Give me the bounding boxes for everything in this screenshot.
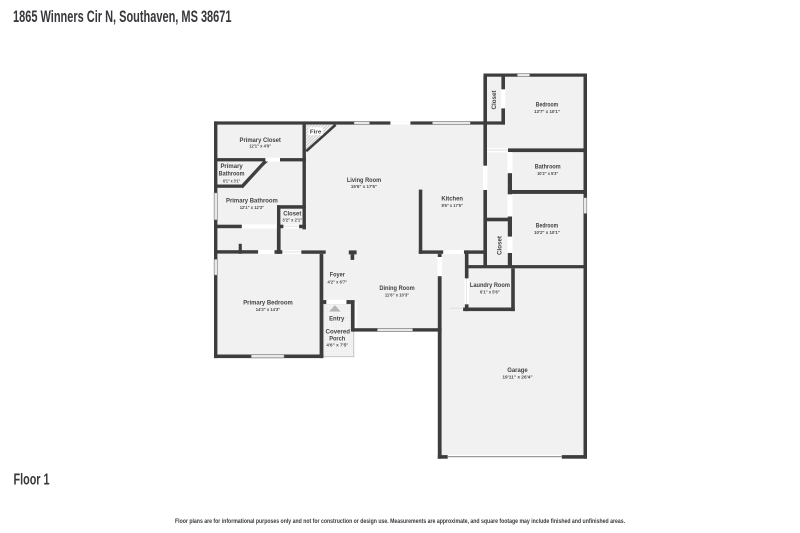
svg-text:10'2" x 10'1": 10'2" x 10'1"	[534, 230, 560, 235]
svg-text:8'6" x 17'5": 8'6" x 17'5"	[441, 203, 463, 208]
svg-text:Bathroom: Bathroom	[219, 171, 245, 178]
svg-text:6'1" x 5'6": 6'1" x 5'6"	[480, 289, 500, 294]
svg-text:Entry: Entry	[329, 316, 345, 323]
svg-text:Covered: Covered	[326, 328, 351, 335]
svg-text:14'3" x 14'3": 14'3" x 14'3"	[256, 307, 280, 312]
svg-text:15'6" x 17'5": 15'6" x 17'5"	[351, 184, 377, 189]
svg-text:Floor 1: Floor 1	[14, 472, 50, 489]
svg-text:Laundry Room: Laundry Room	[470, 282, 510, 289]
svg-text:Closet: Closet	[491, 90, 498, 110]
svg-text:Primary Bathroom: Primary Bathroom	[226, 197, 278, 204]
svg-text:Kitchen: Kitchen	[441, 195, 463, 202]
svg-text:Closet: Closet	[283, 211, 302, 218]
svg-text:Floor plans are for informatio: Floor plans are for informational purpos…	[175, 518, 625, 525]
svg-text:19'11" x 26'4": 19'11" x 26'4"	[502, 375, 532, 380]
svg-text:Foyer: Foyer	[330, 272, 346, 279]
svg-text:Dining Room: Dining Room	[379, 285, 415, 292]
svg-text:Primary: Primary	[220, 163, 243, 170]
svg-text:Bedroom: Bedroom	[536, 102, 559, 109]
svg-text:6'1" x 3'1": 6'1" x 3'1"	[223, 178, 240, 183]
svg-text:10'2" x 5'3": 10'2" x 5'3"	[537, 171, 558, 176]
svg-text:Bathroom: Bathroom	[535, 164, 561, 171]
svg-text:Garage: Garage	[507, 367, 528, 374]
svg-text:4'2" x 6'7": 4'2" x 6'7"	[328, 279, 348, 284]
svg-text:1865 Winners Cir N, Southaven,: 1865 Winners Cir N, Southaven, MS 38671	[13, 8, 232, 26]
svg-text:Bedroom: Bedroom	[536, 223, 559, 230]
svg-text:4'6" x 7'5": 4'6" x 7'5"	[326, 343, 348, 348]
svg-text:Porch: Porch	[329, 335, 345, 342]
svg-text:12'1" x 4'9": 12'1" x 4'9"	[249, 144, 271, 149]
svg-text:Living Room: Living Room	[347, 177, 382, 184]
svg-text:13'7" x 10'1": 13'7" x 10'1"	[534, 109, 560, 114]
svg-text:11'6" x 10'3": 11'6" x 10'3"	[385, 293, 409, 298]
svg-text:Closet: Closet	[496, 235, 503, 255]
svg-text:3'2" x 2'1": 3'2" x 2'1"	[282, 218, 302, 223]
svg-text:Fire: Fire	[310, 129, 322, 135]
svg-text:Primary Bedroom: Primary Bedroom	[243, 299, 293, 306]
svg-text:12'1" x 12'3": 12'1" x 12'3"	[240, 205, 264, 210]
